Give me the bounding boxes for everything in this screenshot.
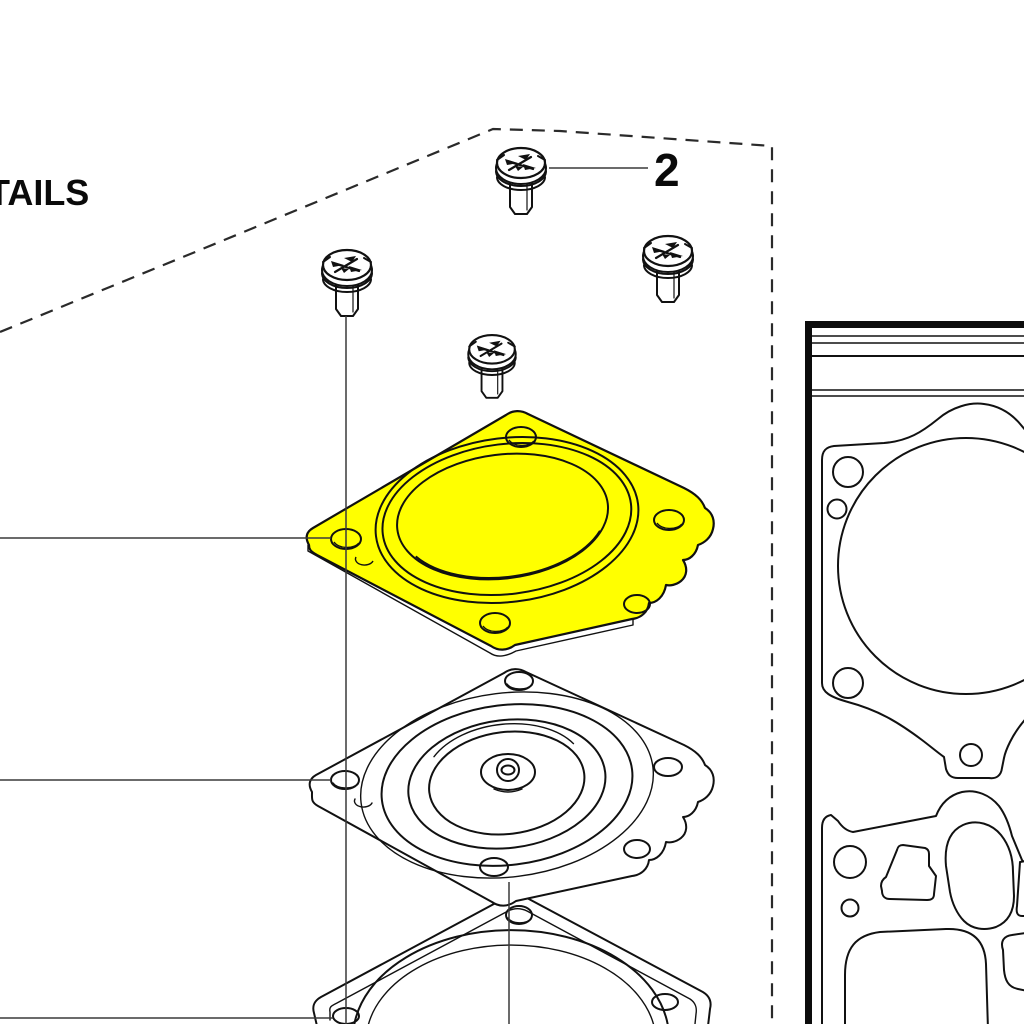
bolt-hole [828,500,847,519]
bolt-hole [833,668,863,698]
metering-diaphragm [310,669,714,906]
parts-diagram-page: TAILS 2 [0,0,1024,1024]
screw-left [322,250,372,316]
inset-border-top [805,321,1024,328]
inset-gasket-top [822,404,1024,779]
screw-middle [468,335,516,398]
diaphragm-gasket [313,895,710,1024]
cutout-hole [842,900,859,917]
cutout-hole [834,846,866,878]
page-title-fragment: TAILS [0,172,89,213]
inset-border-left [805,321,812,1024]
inset-panel [805,321,1024,1024]
callout-2-label: 2 [654,144,680,196]
bolt-hole [833,457,863,487]
screw-top [496,148,546,214]
diaphragm-cover-highlighted [307,411,714,656]
bolt-hole [960,744,982,766]
inset-edge-lines [812,336,1024,396]
screw-right [643,236,693,302]
inset-gasket-bottom [822,791,1024,1024]
cutout-bowl [845,929,988,1024]
exploded-view-diagram: TAILS 2 [0,0,1024,1024]
